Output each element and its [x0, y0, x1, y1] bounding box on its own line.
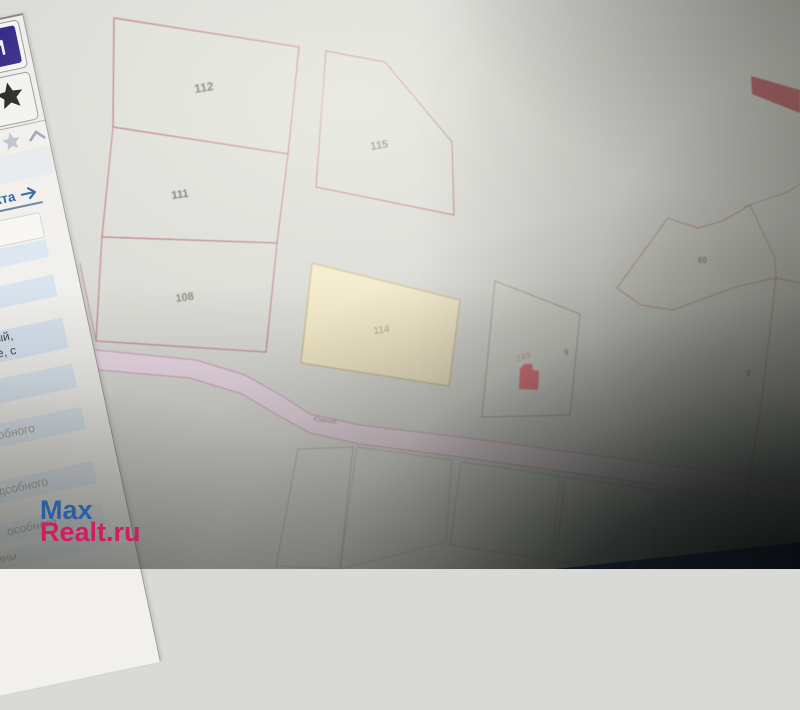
svg-text:108: 108: [175, 291, 195, 305]
svg-text:9: 9: [564, 348, 569, 357]
svg-text:69: 69: [698, 256, 707, 265]
svg-text:111: 111: [171, 188, 190, 202]
svg-text:114: 114: [373, 324, 391, 337]
svg-text:3: 3: [746, 369, 751, 378]
